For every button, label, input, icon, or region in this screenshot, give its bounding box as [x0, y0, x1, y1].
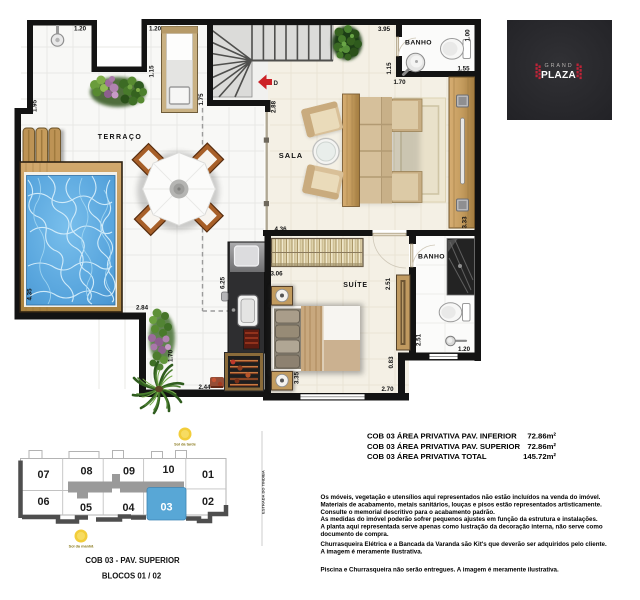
svg-text:01: 01: [202, 469, 214, 481]
svg-text:72.86m²: 72.86m²: [527, 442, 556, 451]
svg-text:03: 03: [160, 502, 172, 514]
svg-text:Consulte o memorial descritivo: Consulte o memorial descritivo para o ac…: [321, 509, 496, 516]
svg-text:BANHO: BANHO: [418, 254, 445, 261]
svg-text:2.88: 2.88: [271, 100, 278, 113]
svg-text:02: 02: [202, 496, 214, 508]
svg-text:2.44: 2.44: [198, 384, 211, 391]
svg-text:1.95: 1.95: [32, 99, 39, 112]
svg-text:145.72m²: 145.72m²: [523, 452, 556, 461]
svg-text:1.70: 1.70: [168, 349, 175, 362]
svg-text:SUÍTE: SUÍTE: [343, 280, 368, 289]
svg-text:BANHO: BANHO: [405, 40, 432, 47]
svg-text:1.00: 1.00: [465, 29, 472, 42]
svg-text:1.70: 1.70: [393, 79, 406, 86]
svg-text:PLAZA: PLAZA: [541, 70, 576, 81]
svg-text:4.36: 4.36: [274, 226, 287, 233]
svg-text:TERRAÇO: TERRAÇO: [98, 134, 142, 141]
svg-text:09: 09: [123, 466, 135, 478]
svg-text:COB 03 ÁREA PRIVATIVA PAV. INF: COB 03 ÁREA PRIVATIVA PAV. INFERIOR: [367, 432, 517, 441]
svg-text:04: 04: [122, 502, 134, 514]
svg-text:05: 05: [80, 502, 92, 514]
svg-text:As medidas do imóvel poderão s: As medidas do imóvel poderão sofrer pequ…: [321, 516, 598, 523]
svg-text:A planta aqui representada ser: A planta aqui representada serve apenas …: [321, 524, 603, 531]
svg-text:ESTRADA DO TINDIBA: ESTRADA DO TINDIBA: [261, 470, 266, 514]
svg-text:10: 10: [162, 464, 174, 476]
svg-text:2.84: 2.84: [136, 305, 149, 312]
svg-text:3.06: 3.06: [270, 271, 283, 278]
svg-text:0.83: 0.83: [388, 356, 395, 369]
svg-text:72.86m²: 72.86m²: [527, 432, 556, 441]
svg-text:6.25: 6.25: [220, 276, 227, 289]
svg-text:SALA: SALA: [279, 151, 303, 160]
svg-text:Piscina e Churrasqueira não se: Piscina e Churrasqueira não serão entreg…: [321, 567, 559, 574]
svg-text:COB 03 ÁREA PRIVATIVA PAV. SUP: COB 03 ÁREA PRIVATIVA PAV. SUPERIOR: [367, 442, 521, 451]
svg-text:Sol da manhã: Sol da manhã: [69, 545, 95, 549]
svg-text:documento de compra.: documento de compra.: [321, 531, 389, 538]
svg-text:2.51: 2.51: [385, 277, 392, 290]
svg-text:08: 08: [80, 466, 92, 478]
svg-text:2.70: 2.70: [381, 386, 394, 393]
svg-text:D: D: [274, 80, 279, 87]
svg-text:COB 03 ÁREA PRIVATIVA TOTAL: COB 03 ÁREA PRIVATIVA TOTAL: [367, 452, 487, 461]
svg-text:1.55: 1.55: [457, 66, 470, 73]
svg-text:4.35: 4.35: [27, 288, 34, 301]
svg-text:Os móveis, vegetação e utensíl: Os móveis, vegetação e utensílios aqui r…: [321, 494, 601, 501]
svg-text:3.35: 3.35: [294, 371, 301, 384]
svg-text:1.20: 1.20: [74, 26, 87, 33]
svg-text:1.20: 1.20: [458, 346, 471, 353]
svg-text:GRAND: GRAND: [545, 63, 574, 69]
svg-text:1.20: 1.20: [149, 26, 162, 33]
svg-text:A imagem é meramente ilustrati: A imagem é meramente ilustrativa.: [321, 548, 423, 555]
svg-text:06: 06: [37, 496, 49, 508]
svg-text:Churrasqueira Elétrica e a Ban: Churrasqueira Elétrica e a Bancada da Va…: [321, 541, 607, 548]
svg-text:Sol da tarde: Sol da tarde: [174, 443, 196, 447]
svg-text:07: 07: [37, 469, 49, 481]
svg-text:1.15: 1.15: [386, 62, 393, 75]
svg-text:2.51: 2.51: [416, 333, 423, 346]
svg-text:3.33: 3.33: [462, 216, 469, 229]
svg-text:Materiais de acabamento, metai: Materiais de acabamento, metais sanitári…: [321, 501, 603, 508]
svg-text:1.75: 1.75: [198, 93, 205, 106]
svg-text:COB 03 - PAV. SUPERIOR: COB 03 - PAV. SUPERIOR: [85, 556, 180, 565]
svg-text:1.15: 1.15: [149, 65, 156, 78]
svg-text:BLOCOS 01 / 02: BLOCOS 01 / 02: [102, 572, 162, 581]
svg-text:3.95: 3.95: [378, 26, 391, 33]
